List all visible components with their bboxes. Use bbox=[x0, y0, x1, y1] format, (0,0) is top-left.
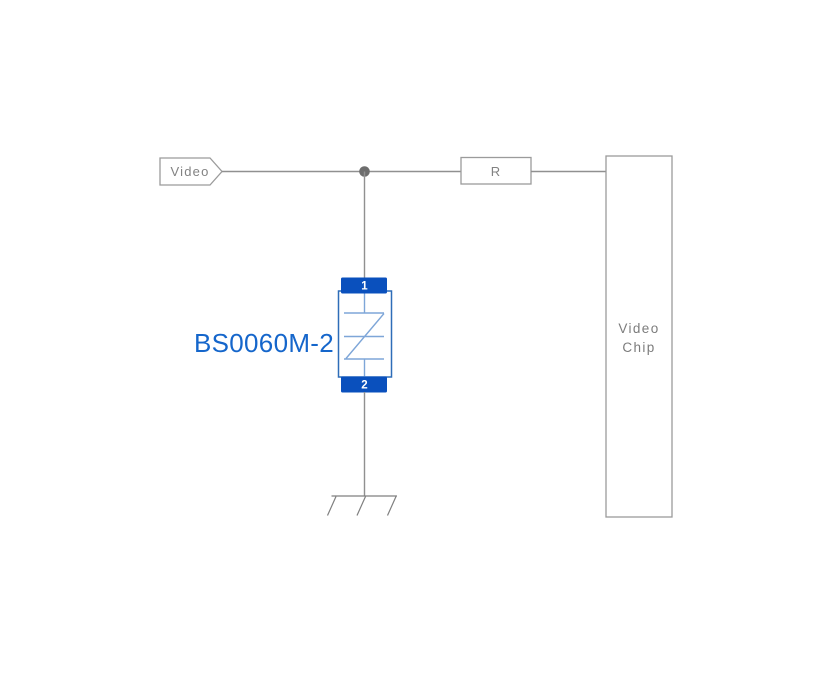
tvs-device: 1 2 bbox=[339, 278, 392, 392]
schematic-page: Video R Video Chip 1 bbox=[0, 0, 832, 675]
tvs-part-number-label: BS0060M-2 bbox=[194, 328, 334, 358]
video-chip-label-line1: Video bbox=[618, 321, 659, 336]
tvs-pin1-number: 1 bbox=[361, 281, 368, 293]
ground-hatch-left bbox=[328, 497, 337, 516]
ground-hatch-right bbox=[388, 497, 397, 516]
video-chip-body bbox=[606, 156, 672, 517]
schematic-canvas: Video R Video Chip 1 bbox=[0, 0, 832, 675]
video-chip: Video Chip bbox=[606, 156, 672, 517]
tvs-pin2-number: 2 bbox=[361, 380, 367, 392]
resistor: R bbox=[461, 158, 531, 185]
video-chip-label-line2: Chip bbox=[622, 340, 655, 355]
video-net-tag: Video bbox=[160, 158, 222, 185]
resistor-label: R bbox=[491, 164, 502, 179]
ground-symbol bbox=[328, 496, 398, 516]
ground-hatch-middle bbox=[357, 497, 366, 516]
video-net-tag-label: Video bbox=[170, 164, 209, 179]
